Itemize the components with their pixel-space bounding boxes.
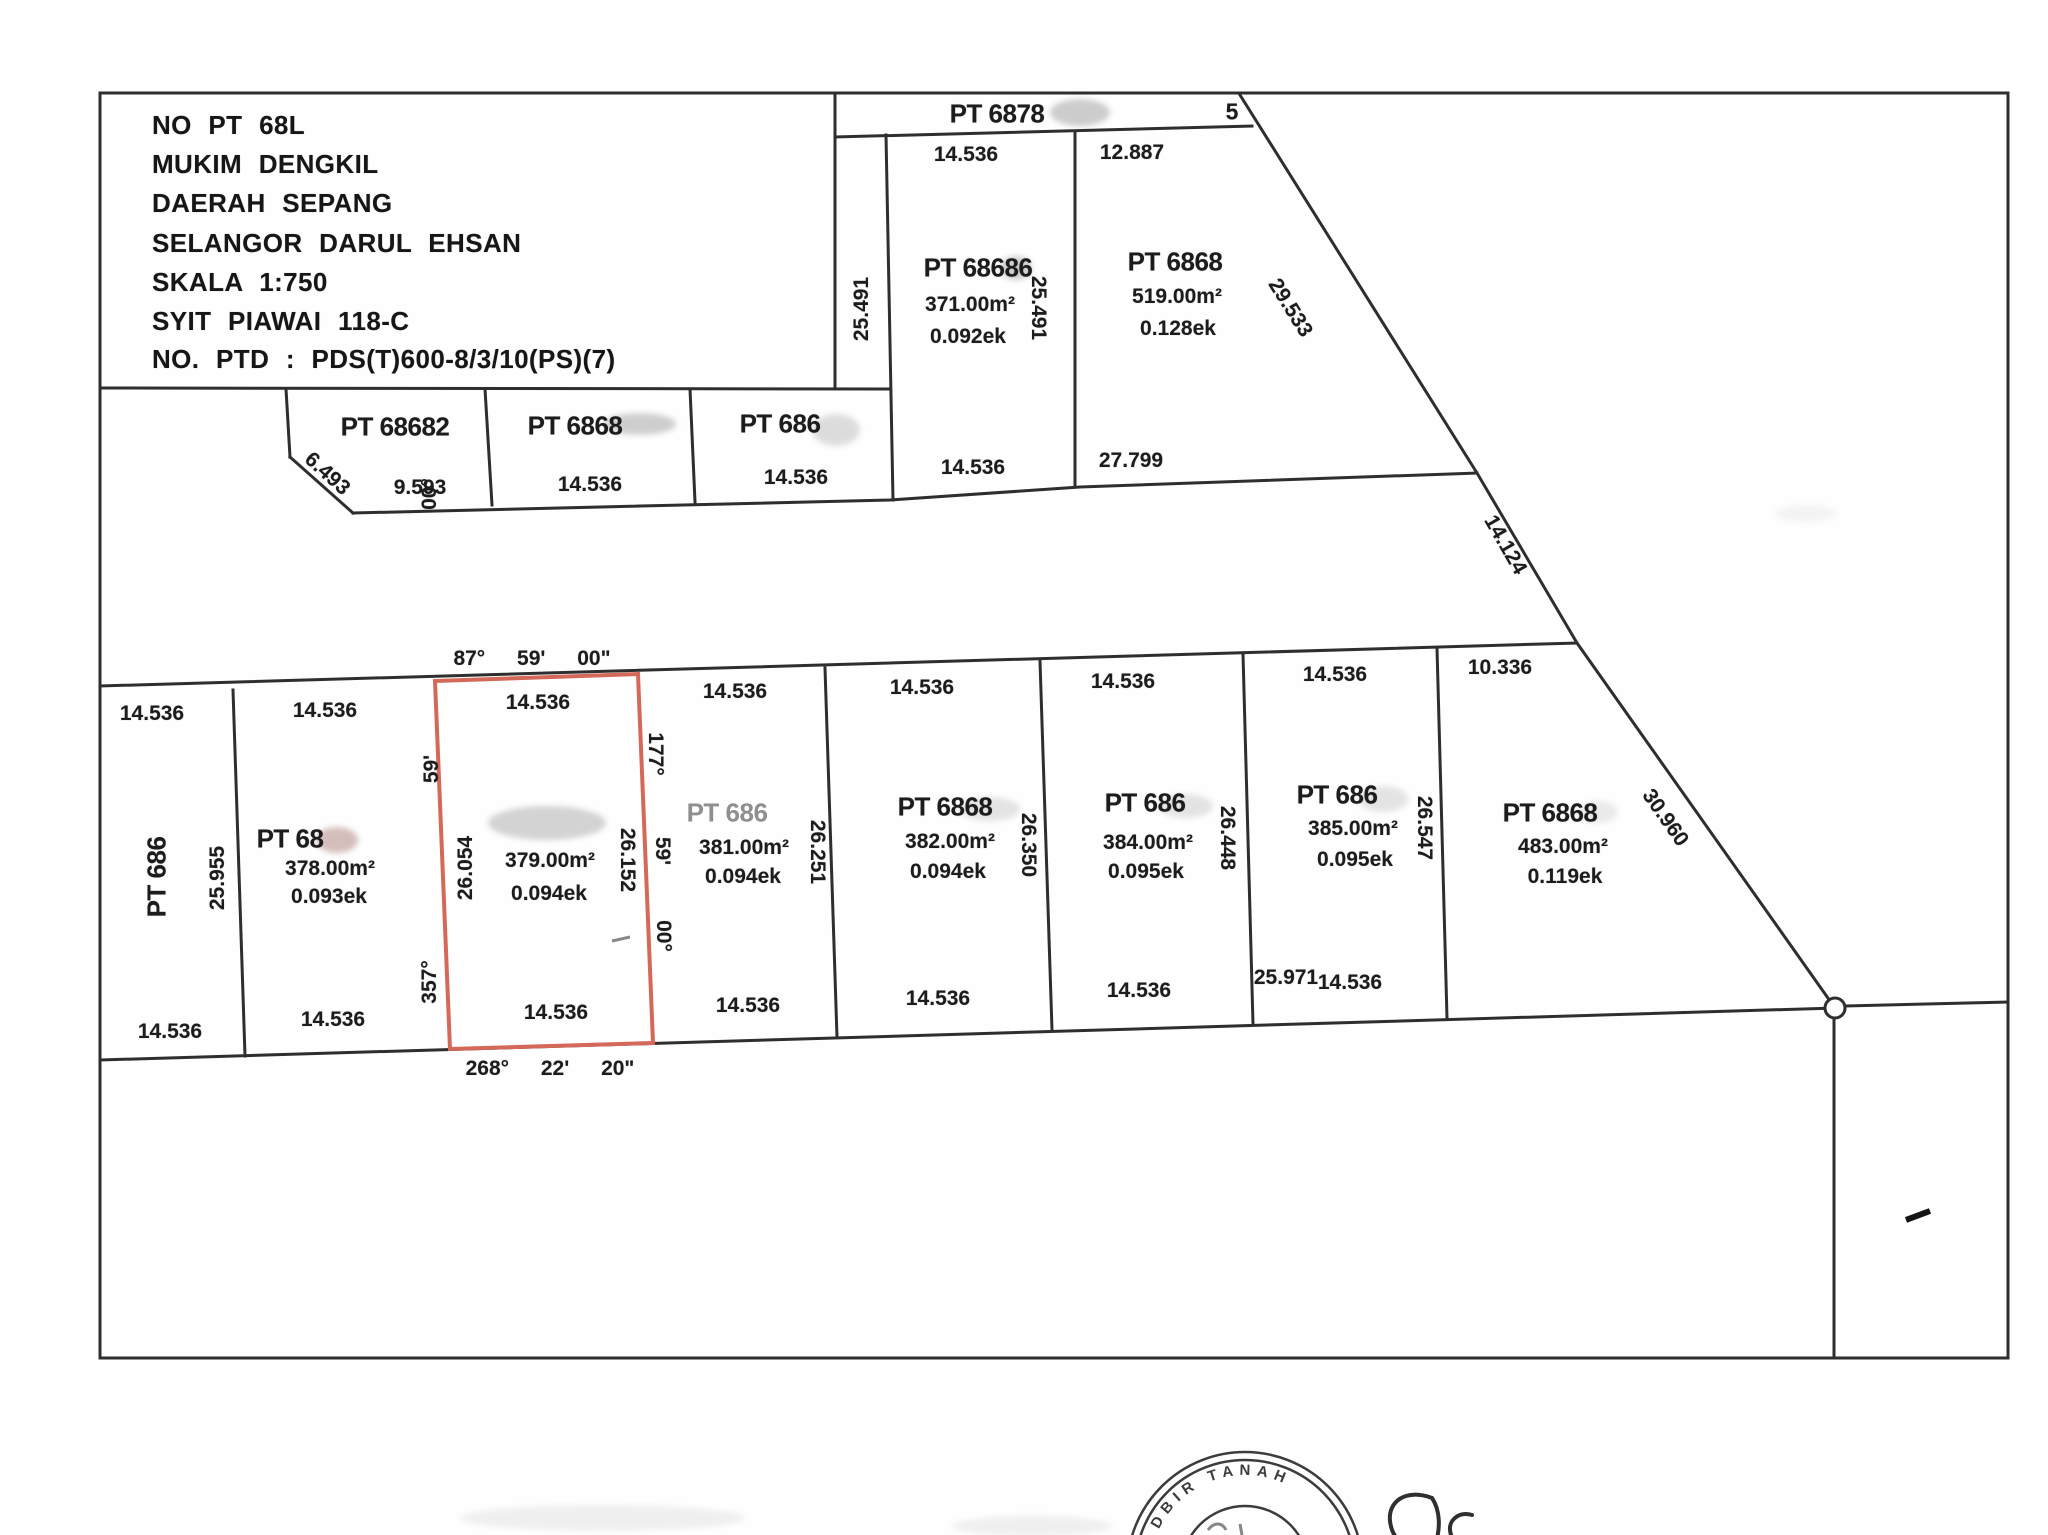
mid-lot5-name: PT 686: [1105, 788, 1186, 819]
mid-lot7-bottom-dim: 25.971: [1254, 966, 1318, 990]
row2-lotC-name: PT 686: [740, 409, 821, 440]
mid-lot2-right-dim: 26.152: [615, 828, 639, 892]
mid-lot3-bottom-dim: 14.536: [716, 994, 780, 1018]
ink-mark-small: [612, 937, 630, 941]
mid-lot5-acreage: 0.095ek: [1108, 860, 1184, 884]
bearing-left-deg: 357°: [418, 960, 442, 1003]
mid-lot6-name: PT 686: [1297, 780, 1378, 811]
bearing-top: 87° 59' 00": [453, 647, 610, 671]
mid-lot4-name: PT 6868: [898, 792, 993, 823]
mid-lot6-acreage: 0.095ek: [1317, 848, 1393, 872]
mid-lot2-left-dim: 26.054: [454, 836, 478, 900]
lotA-area: 371.00m²: [925, 293, 1015, 317]
mid-divider-1: [233, 690, 245, 1056]
row2-divider2: [690, 389, 695, 502]
mid-lot1-top-dim: 14.536: [293, 699, 357, 723]
mid-lot2-top-dim: 14.536: [506, 691, 570, 715]
mid-lot5-area: 384.00m²: [1103, 831, 1193, 855]
mid-lot0-side-dim: 25.955: [206, 846, 230, 910]
stamp-arc-text: DBIR TANAH: [1147, 1462, 1293, 1532]
lot68682-name: PT 68682: [341, 412, 450, 443]
title-line-syit: SYIT PIAWAI 118-C: [152, 306, 409, 337]
mid-lot7-top-dim: 10.336: [1468, 656, 1532, 680]
smudge-bottom-left: [460, 1505, 745, 1531]
mid-divider-5: [1040, 661, 1052, 1030]
mid-lot4-top-dim: 14.536: [890, 676, 954, 700]
mid-lot4-acreage: 0.094ek: [910, 860, 986, 884]
mid-lot1-bottom-dim: 14.536: [301, 1008, 365, 1032]
bearing-right-min: 59': [650, 837, 674, 865]
lotB-area: 519.00m²: [1132, 285, 1222, 309]
mid-lot1-area: 378.00m²: [285, 857, 375, 881]
mid-lot2-acreage: 0.094ek: [511, 882, 587, 906]
bearing-left-min: 59': [420, 755, 444, 783]
stamp-inner-marks: [1208, 1524, 1242, 1535]
mid-lot2-area: 379.00m²: [505, 849, 595, 873]
mid-lot4-area: 382.00m²: [905, 830, 995, 854]
strip-corner-label: 5: [1226, 99, 1239, 126]
mid-lot7-acreage: 0.119ek: [1528, 865, 1603, 889]
mid-divider-7: [1437, 648, 1447, 1018]
mid-lot0-bottom-dim: 14.536: [138, 1020, 202, 1044]
lotB-bottom-dim: 27.799: [1099, 449, 1163, 473]
lotA-left: [886, 135, 893, 500]
bearing-right-sec: 00°: [651, 920, 675, 952]
ink-mark: [1906, 1211, 1930, 1220]
smudge-bottom-mid: [952, 1516, 1112, 1535]
title-line-daerah: DAERAH SEPANG: [152, 188, 393, 219]
mid-lot6-side-dim: 26.547: [1412, 796, 1436, 860]
mid-lot5-top-dim: 14.536: [1091, 670, 1155, 694]
title-line-mukim: MUKIM DENGKIL: [152, 149, 379, 180]
corner-east-line: [1846, 1002, 2008, 1006]
bearing-left-sec: 00°: [418, 478, 442, 510]
lotB-top-dim: 12.887: [1100, 141, 1164, 165]
row2-lotB-name: PT 6868: [528, 411, 623, 442]
lotB-name: PT 6868: [1128, 247, 1223, 278]
strip-lot-label: PT 6878: [950, 99, 1045, 130]
lot68682-left: [286, 389, 290, 457]
title-line-negeri: SELANGOR DARUL EHSAN: [152, 228, 521, 259]
title-line-skala: SKALA 1:750: [152, 267, 328, 298]
mid-lot1-name: PT 68: [257, 824, 324, 855]
mid-lot5-side-dim: 26.448: [1215, 806, 1239, 870]
mid-lot7-name: PT 6868: [1503, 798, 1598, 829]
smudge-strip: [1050, 99, 1110, 126]
title-line-ptd-ref: NO. PTD : PDS(T)600-8/3/10(PS)(7): [152, 344, 616, 375]
row2-lotB-bottom-dim: 14.536: [558, 473, 622, 497]
bearing-bottom: 268° 22' 20": [466, 1057, 635, 1081]
outer-border: [100, 93, 2008, 1358]
bearing-right-deg: 177°: [643, 732, 667, 775]
mid-divider-6: [1243, 654, 1253, 1024]
row2-lotC-bottom-dim: 14.536: [764, 466, 828, 490]
mid-lot3-top-dim: 14.536: [703, 680, 767, 704]
mid-lot0-name: PT 686: [142, 837, 173, 918]
mid-lot3-name: PT 686: [687, 798, 768, 829]
mid-lot3-area: 381.00m²: [699, 836, 789, 860]
mid-lot3-acreage: 0.094ek: [705, 865, 781, 889]
row2-divider1: [485, 389, 492, 505]
mid-lot0-top-dim: 14.536: [120, 702, 184, 726]
lotA-bottom-dim: 14.536: [941, 456, 1005, 480]
lotA-name: PT 68686: [924, 253, 1033, 284]
mid-lot4-bottom-dim: 14.536: [906, 987, 970, 1011]
title-box-bottom: [100, 388, 888, 389]
title-line-pt-no: NO PT 68L: [152, 110, 305, 141]
lotA-acreage: 0.092ek: [930, 325, 1006, 349]
mid-lot7-area: 483.00m²: [1518, 835, 1608, 859]
mid-lot3-side-dim: 26.251: [805, 820, 829, 884]
mid-lot5-bottom-dim: 14.536: [1107, 979, 1171, 1003]
survey-corner-marker: [1825, 998, 1845, 1018]
mid-lot4-side-dim: 26.350: [1016, 813, 1040, 877]
mid-lot2-bottom-dim: 14.536: [524, 1001, 588, 1025]
survey-plan-page: DBIR TANAH NO PT 68L MUKIM DENGKIL DAERA…: [0, 0, 2048, 1535]
mid-lot1-acreage: 0.093ek: [291, 885, 367, 909]
smudge-redlot-erased-name: [488, 806, 606, 840]
lotA-top-dim: 14.536: [934, 143, 998, 167]
lotA-left-dim: 25.491: [850, 277, 874, 341]
handwriting-initials: [1390, 1495, 1472, 1535]
mid-lot6-bottom-dim: 14.536: [1318, 971, 1382, 995]
upper-row-bottom: [353, 473, 1477, 513]
lotB-acreage: 0.128ek: [1140, 317, 1216, 341]
mid-lot6-area: 385.00m²: [1308, 817, 1398, 841]
lotA-right-dim: 25.491: [1026, 276, 1050, 340]
smudge-diag: [1775, 505, 1837, 522]
mid-lot6-top-dim: 14.536: [1303, 663, 1367, 687]
